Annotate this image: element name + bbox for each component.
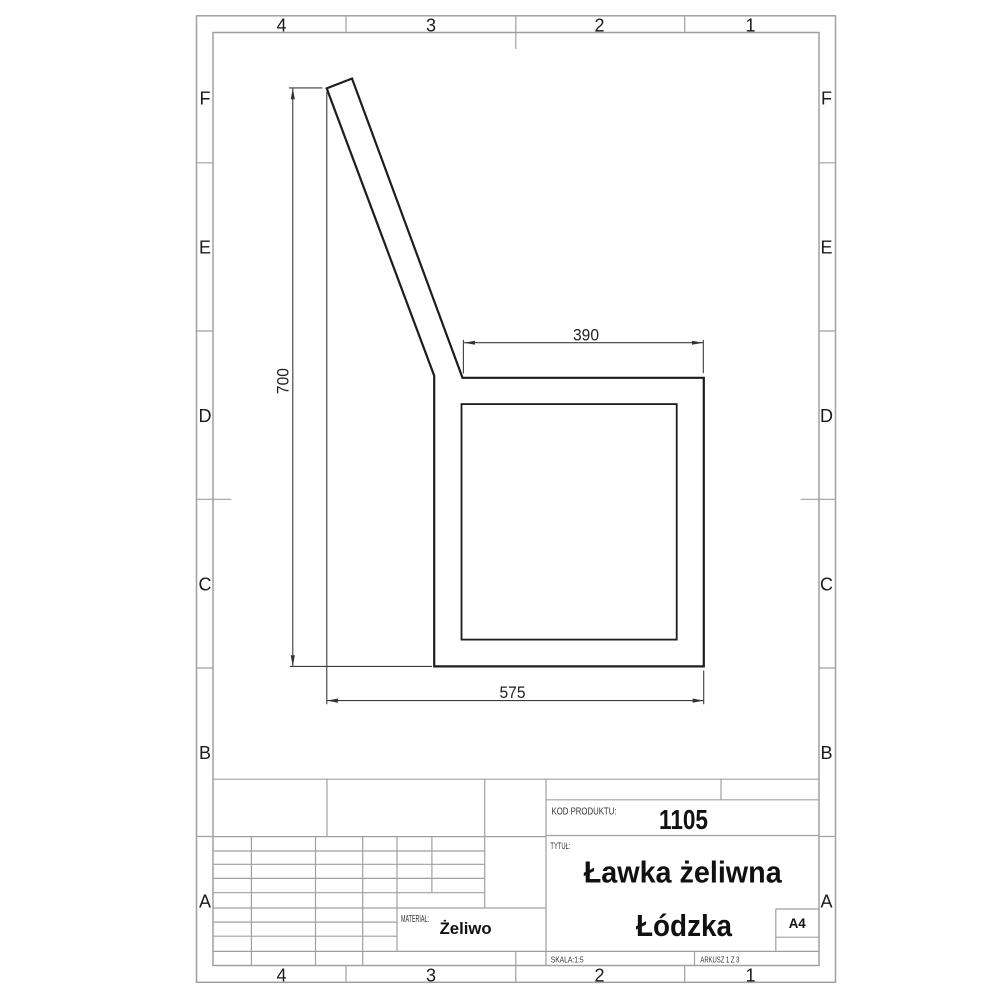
svg-text:MATERIAŁ:: MATERIAŁ:	[401, 914, 429, 925]
svg-text:A: A	[199, 892, 211, 912]
svg-text:A: A	[820, 892, 832, 912]
svg-text:1: 1	[745, 16, 755, 36]
svg-text:C: C	[820, 575, 833, 595]
svg-text:KOD PRODUKTU:: KOD PRODUKTU:	[552, 806, 617, 818]
svg-text:390: 390	[573, 325, 599, 344]
svg-text:2: 2	[594, 16, 604, 36]
svg-text:E: E	[199, 238, 211, 258]
svg-text:1: 1	[745, 966, 755, 986]
svg-text:4: 4	[276, 966, 286, 986]
svg-text:1105: 1105	[659, 804, 708, 835]
svg-text:700: 700	[274, 368, 293, 394]
svg-text:D: D	[199, 406, 212, 426]
svg-text:B: B	[199, 743, 211, 763]
svg-text:A4: A4	[789, 916, 806, 931]
svg-text:575: 575	[500, 683, 526, 702]
svg-text:ARKUSZ 1 Z 3: ARKUSZ 1 Z 3	[700, 954, 739, 964]
svg-text:Żeliwo: Żeliwo	[440, 919, 492, 938]
svg-text:SKALA:1:5: SKALA:1:5	[551, 954, 584, 964]
svg-text:3: 3	[426, 966, 436, 986]
svg-text:B: B	[820, 743, 832, 763]
svg-text:4: 4	[276, 16, 286, 36]
svg-text:2: 2	[594, 966, 604, 986]
svg-text:TYTUŁ:: TYTUŁ:	[550, 841, 570, 851]
svg-text:C: C	[199, 575, 212, 595]
svg-text:D: D	[820, 406, 833, 426]
svg-text:Ławka żeliwna: Ławka żeliwna	[584, 855, 783, 890]
svg-text:F: F	[200, 88, 211, 108]
svg-text:F: F	[821, 88, 832, 108]
svg-text:E: E	[820, 238, 832, 258]
svg-text:Łódzka: Łódzka	[636, 908, 733, 943]
svg-text:3: 3	[426, 16, 436, 36]
